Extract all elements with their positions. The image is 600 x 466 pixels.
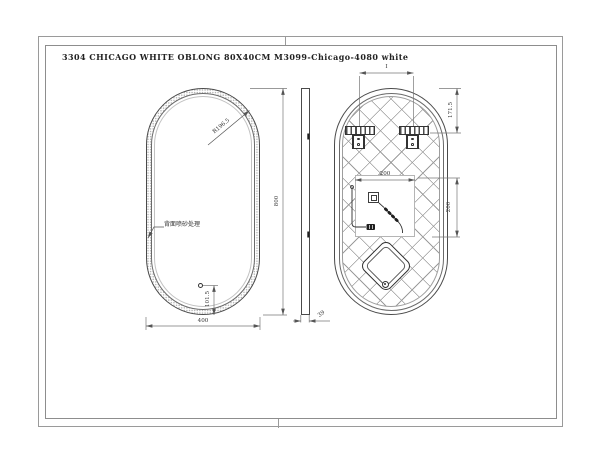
hanger-bracket-left (345, 126, 375, 152)
bottom-center-mark (278, 419, 279, 428)
screw-hole-icon (357, 138, 360, 141)
top-center-mark (285, 36, 286, 45)
screw-hole-icon (411, 138, 414, 141)
drawing-sheet: 3304 CHICAGO WHITE OBLONG 80X40CM M3099-… (0, 0, 600, 466)
dim-label-sensor-offset: 101.5 (206, 291, 212, 307)
side-view-profile (301, 88, 310, 315)
dim-label-height-800: 800 (275, 196, 281, 207)
hanger-plate (352, 135, 365, 149)
back-clear-cutout (355, 175, 415, 237)
hanger-plate (406, 135, 419, 149)
dim-label-cutout-width: 200 (380, 172, 391, 178)
drawing-title: 3304 CHICAGO WHITE OBLONG 80X40CM M3099-… (62, 52, 408, 62)
screw-hole-icon (357, 143, 360, 146)
dim-label-top-to-hanger: 171.5 (449, 102, 455, 118)
hanger-bracket-right (399, 126, 429, 152)
dim-label-cutout-height: 200 (447, 202, 453, 213)
screw-hole-icon (411, 143, 414, 146)
touch-sensor (198, 283, 203, 288)
back-sandblast-note: 背面喷砂处理 (164, 222, 200, 228)
junction-box-inner (371, 195, 377, 201)
dim-label-hanger-spacing: I (385, 65, 387, 71)
dim-label-width-400: 400 (198, 319, 209, 325)
front-view-sandblast-edge (154, 96, 252, 307)
